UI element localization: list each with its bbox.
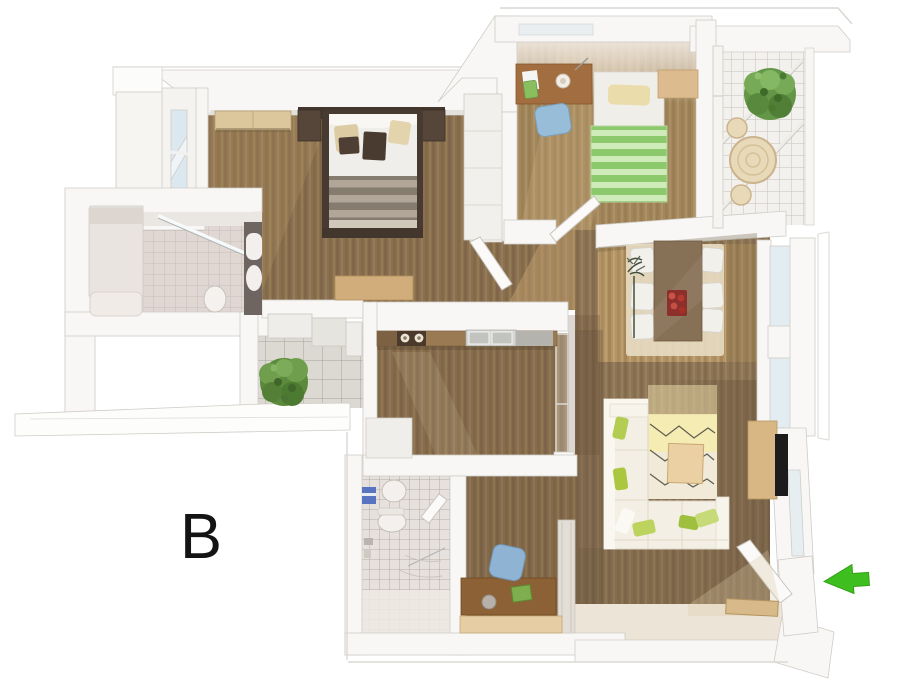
svg-text:B: B: [180, 500, 222, 572]
